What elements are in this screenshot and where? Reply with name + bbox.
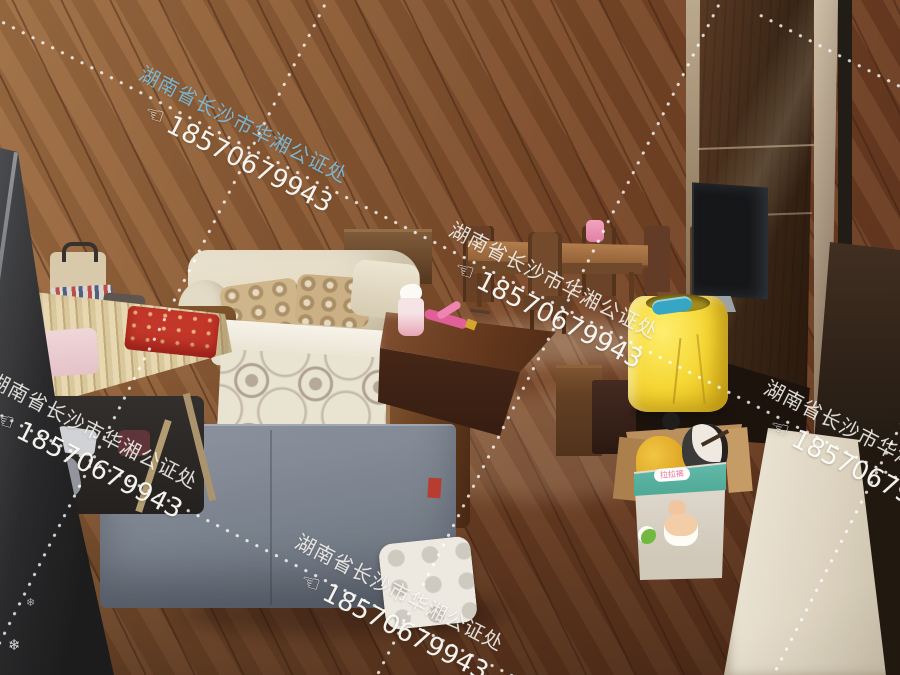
living-room-photo: 拉拉裤 ❄ ❄ [0, 0, 900, 675]
warm-cast-overlay [0, 0, 900, 675]
